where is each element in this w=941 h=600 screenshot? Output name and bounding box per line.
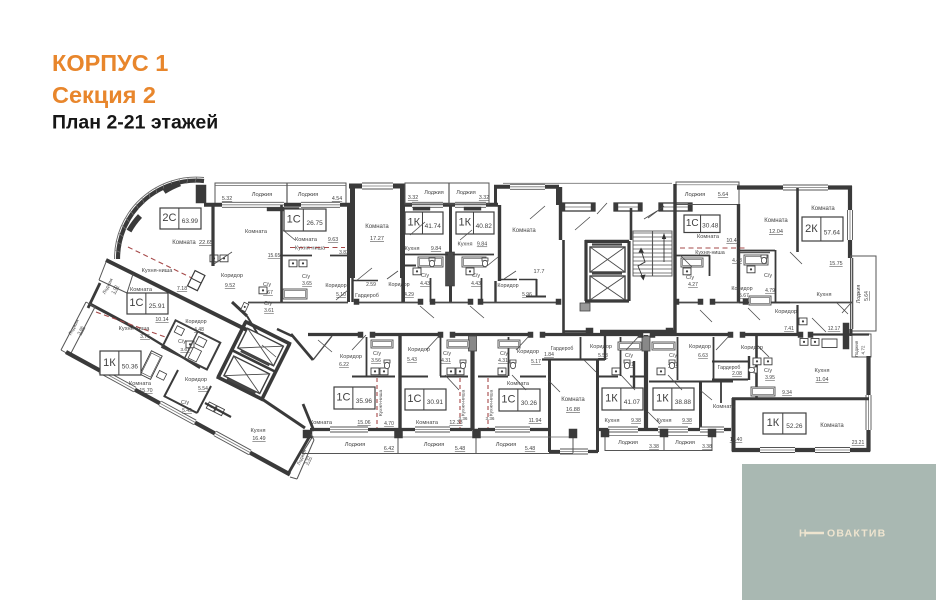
- svg-text:С/у: С/у: [302, 274, 310, 280]
- svg-text:Лоджия: Лоджия: [854, 340, 859, 357]
- svg-text:Лоджия: Лоджия: [618, 440, 638, 446]
- svg-text:Кухня-ниша: Кухня-ниша: [119, 326, 151, 332]
- svg-text:4.31: 4.31: [441, 358, 451, 364]
- svg-text:16.88: 16.88: [566, 407, 580, 413]
- svg-text:Лоджия: Лоджия: [424, 190, 444, 196]
- svg-text:12.04: 12.04: [769, 229, 783, 235]
- svg-text:Комната: Комната: [295, 237, 318, 243]
- svg-text:2.08: 2.08: [732, 371, 742, 377]
- svg-text:Кухня: Кухня: [815, 368, 830, 374]
- svg-text:4.79: 4.79: [765, 288, 775, 294]
- svg-text:Комната: Комната: [310, 420, 333, 426]
- svg-text:С/у: С/у: [500, 351, 508, 357]
- svg-text:Комната: Комната: [512, 228, 536, 234]
- svg-text:Кухня-ниша: Кухня-ниша: [461, 390, 467, 417]
- svg-text:1С: 1С: [407, 393, 421, 405]
- svg-text:Секция 2: Секция 2: [52, 82, 156, 108]
- svg-text:Лоджия: Лоджия: [496, 442, 517, 448]
- svg-text:С/у: С/у: [764, 368, 772, 374]
- svg-text:5.43: 5.43: [407, 357, 417, 363]
- svg-text:Кухня: Кухня: [251, 428, 266, 434]
- svg-text:6.22: 6.22: [339, 362, 349, 368]
- svg-text:Комната: Комната: [129, 381, 152, 387]
- svg-text:5.64: 5.64: [864, 291, 870, 301]
- svg-text:Лоджия: Лоджия: [252, 192, 273, 198]
- svg-text:4.31: 4.31: [498, 358, 508, 364]
- svg-text:1.84: 1.84: [544, 352, 554, 358]
- svg-text:6.42: 6.42: [384, 446, 394, 452]
- svg-text:9.63: 9.63: [328, 237, 338, 243]
- svg-text:Коридор: Коридор: [775, 309, 797, 315]
- svg-text:Комната: Комната: [811, 206, 835, 212]
- svg-text:3.38: 3.38: [649, 444, 659, 450]
- svg-text:С/у: С/у: [373, 351, 381, 357]
- svg-text:17.7: 17.7: [534, 269, 545, 275]
- svg-text:Комната: Комната: [172, 240, 196, 246]
- svg-text:2.59: 2.59: [366, 282, 376, 288]
- svg-text:1С: 1С: [501, 394, 515, 406]
- svg-text:52.26: 52.26: [786, 423, 803, 430]
- svg-text:С/у: С/у: [421, 273, 429, 279]
- svg-text:Гардероб: Гардероб: [355, 293, 379, 299]
- svg-text:Лоджия: Лоджия: [345, 442, 366, 448]
- svg-text:57.64: 57.64: [824, 229, 841, 236]
- svg-text:30.26: 30.26: [521, 400, 538, 407]
- svg-text:Коридор: Коридор: [185, 377, 207, 383]
- svg-text:5.67: 5.67: [739, 293, 749, 299]
- svg-text:1К: 1К: [767, 417, 780, 429]
- svg-text:3.36: 3.36: [459, 416, 468, 421]
- svg-text:5.48: 5.48: [455, 446, 465, 452]
- svg-text:3.95: 3.95: [765, 375, 775, 381]
- svg-text:15.75: 15.75: [829, 261, 842, 267]
- svg-text:Лоджия: Лоджия: [856, 285, 862, 304]
- svg-text:Лоджия: Лоджия: [424, 442, 445, 448]
- svg-text:4.43: 4.43: [471, 281, 481, 287]
- svg-text:22.65: 22.65: [199, 240, 213, 246]
- svg-text:11.04: 11.04: [816, 377, 829, 383]
- svg-text:1К: 1К: [656, 393, 669, 405]
- svg-text:1К: 1К: [407, 217, 420, 229]
- svg-text:4.72: 4.72: [861, 345, 866, 354]
- svg-text:41.74: 41.74: [425, 223, 442, 230]
- svg-text:15.06: 15.06: [357, 420, 370, 426]
- svg-text:4.48: 4.48: [732, 258, 742, 264]
- svg-text:2С: 2С: [162, 212, 176, 224]
- svg-text:40.82: 40.82: [476, 223, 493, 230]
- svg-text:Кухня-ниша: Кухня-ниша: [489, 390, 495, 417]
- svg-text:1С: 1С: [287, 214, 301, 226]
- svg-text:25.91: 25.91: [149, 303, 166, 310]
- svg-text:35.96: 35.96: [356, 398, 373, 405]
- svg-text:9.34: 9.34: [782, 390, 792, 396]
- svg-text:4.70: 4.70: [384, 421, 394, 427]
- svg-text:Коридор: Коридор: [388, 282, 409, 288]
- svg-text:План 2-21 этажей: План 2-21 этажей: [52, 112, 218, 134]
- svg-text:3.38: 3.38: [702, 444, 712, 450]
- svg-text:Коридор: Коридор: [517, 349, 539, 355]
- svg-text:11.94: 11.94: [529, 418, 542, 424]
- svg-text:1С: 1С: [336, 392, 350, 404]
- svg-text:Коридор: Коридор: [689, 344, 711, 350]
- svg-text:5.48: 5.48: [525, 446, 535, 452]
- svg-text:1С: 1С: [129, 297, 143, 309]
- svg-text:С/у: С/у: [264, 301, 272, 307]
- svg-text:1С: 1С: [686, 218, 699, 229]
- svg-text:Кухня-ниша: Кухня-ниша: [142, 268, 174, 274]
- svg-text:3.32: 3.32: [408, 195, 418, 201]
- svg-text:3.76: 3.76: [140, 334, 150, 340]
- svg-text:30.91: 30.91: [427, 399, 444, 406]
- svg-text:Лоджия: Лоджия: [456, 190, 476, 196]
- svg-text:50.36: 50.36: [122, 363, 139, 370]
- svg-text:Кухня: Кухня: [605, 418, 620, 424]
- svg-text:Коридор: Коридор: [731, 286, 752, 292]
- svg-text:3.65: 3.65: [302, 281, 312, 287]
- svg-text:Коридор: Коридор: [340, 354, 362, 360]
- svg-text:КОРПУС 1: КОРПУС 1: [52, 50, 168, 76]
- svg-text:Комната: Комната: [416, 420, 439, 426]
- svg-text:30.48: 30.48: [702, 223, 719, 230]
- svg-text:3.56: 3.56: [371, 358, 381, 364]
- svg-text:1К: 1К: [103, 357, 116, 369]
- svg-text:Комната: Комната: [365, 224, 389, 230]
- svg-text:5.96: 5.96: [522, 292, 532, 298]
- svg-text:10.14: 10.14: [155, 317, 168, 323]
- svg-text:Лоджия: Лоджия: [685, 192, 706, 198]
- svg-text:7.41: 7.41: [784, 326, 794, 332]
- svg-text:4.54: 4.54: [332, 196, 342, 202]
- svg-text:7.18: 7.18: [177, 286, 187, 292]
- svg-text:С/у: С/у: [686, 275, 694, 281]
- svg-text:С/у: С/у: [178, 339, 186, 345]
- svg-text:26.75: 26.75: [307, 220, 324, 227]
- svg-text:С/у: С/у: [443, 351, 451, 357]
- svg-text:Коридор: Коридор: [408, 347, 430, 353]
- svg-text:Комната: Комната: [130, 287, 153, 293]
- svg-text:Комната: Комната: [561, 397, 585, 403]
- svg-text:Лоджия: Лоджия: [675, 440, 695, 446]
- svg-text:Лоджия: Лоджия: [298, 192, 319, 198]
- svg-text:3.61: 3.61: [180, 347, 190, 353]
- svg-text:3.61: 3.61: [264, 308, 274, 314]
- svg-text:2К: 2К: [805, 223, 818, 235]
- svg-text:5.64: 5.64: [718, 192, 728, 198]
- svg-text:1К: 1К: [458, 217, 471, 229]
- svg-text:12.17: 12.17: [828, 326, 841, 332]
- svg-text:17.27: 17.27: [370, 236, 384, 242]
- svg-text:4.29: 4.29: [404, 292, 414, 298]
- svg-text:63.99: 63.99: [182, 218, 199, 225]
- svg-text:Коридор: Коридор: [325, 283, 346, 289]
- svg-text:4.48: 4.48: [194, 327, 204, 333]
- svg-text:ОВАКТИВ: ОВАКТИВ: [827, 528, 886, 540]
- svg-text:Кухня ниша: Кухня ниша: [295, 246, 326, 252]
- svg-text:С/у: С/у: [181, 400, 189, 406]
- svg-text:6.63: 6.63: [698, 353, 708, 359]
- svg-text:С/у: С/у: [669, 353, 677, 359]
- svg-text:15.70: 15.70: [139, 388, 152, 394]
- svg-text:9.84: 9.84: [431, 246, 441, 252]
- svg-text:9.84: 9.84: [477, 242, 487, 248]
- svg-text:Кухня: Кухня: [458, 242, 473, 248]
- svg-text:С/у: С/у: [625, 353, 633, 359]
- svg-text:16.49: 16.49: [252, 436, 265, 442]
- svg-text:Кухня: Кухня: [817, 292, 832, 298]
- svg-text:10.42: 10.42: [726, 238, 739, 244]
- svg-text:Гардероб: Гардероб: [551, 346, 574, 352]
- svg-text:3.32: 3.32: [479, 195, 489, 201]
- svg-text:13.40: 13.40: [730, 437, 743, 443]
- svg-text:С/у: С/у: [764, 273, 772, 279]
- svg-text:9.52: 9.52: [225, 283, 235, 289]
- svg-text:5.17: 5.17: [531, 359, 541, 365]
- svg-text:9.38: 9.38: [682, 418, 692, 424]
- svg-text:Кухня: Кухня: [405, 246, 420, 252]
- svg-text:5.32: 5.32: [222, 196, 232, 202]
- svg-text:Комната: Комната: [820, 423, 844, 429]
- svg-text:4.43: 4.43: [420, 281, 430, 287]
- svg-text:Коридор: Коридор: [590, 344, 612, 350]
- svg-text:4.27: 4.27: [688, 282, 698, 288]
- svg-text:Комната: Комната: [245, 229, 268, 235]
- svg-text:3.36: 3.36: [486, 416, 495, 421]
- svg-text:41.07: 41.07: [624, 399, 641, 406]
- svg-text:Комната: Комната: [697, 234, 720, 240]
- svg-text:38.88: 38.88: [675, 399, 692, 406]
- svg-text:15.65: 15.65: [268, 253, 281, 259]
- svg-text:1К: 1К: [605, 393, 618, 405]
- svg-text:Коридор: Коридор: [221, 273, 243, 279]
- svg-text:23.21: 23.21: [852, 440, 865, 446]
- svg-text:5.58: 5.58: [598, 353, 608, 359]
- svg-text:Коридор: Коридор: [497, 283, 518, 289]
- svg-text:Комната: Комната: [713, 404, 736, 410]
- svg-text:Коридор: Коридор: [185, 319, 206, 325]
- svg-text:5.54: 5.54: [198, 386, 208, 392]
- svg-text:9.38: 9.38: [631, 418, 641, 424]
- svg-text:Комната: Комната: [764, 218, 788, 224]
- svg-text:5.45: 5.45: [182, 408, 192, 414]
- svg-text:Кухня-ниша: Кухня-ниша: [378, 390, 384, 417]
